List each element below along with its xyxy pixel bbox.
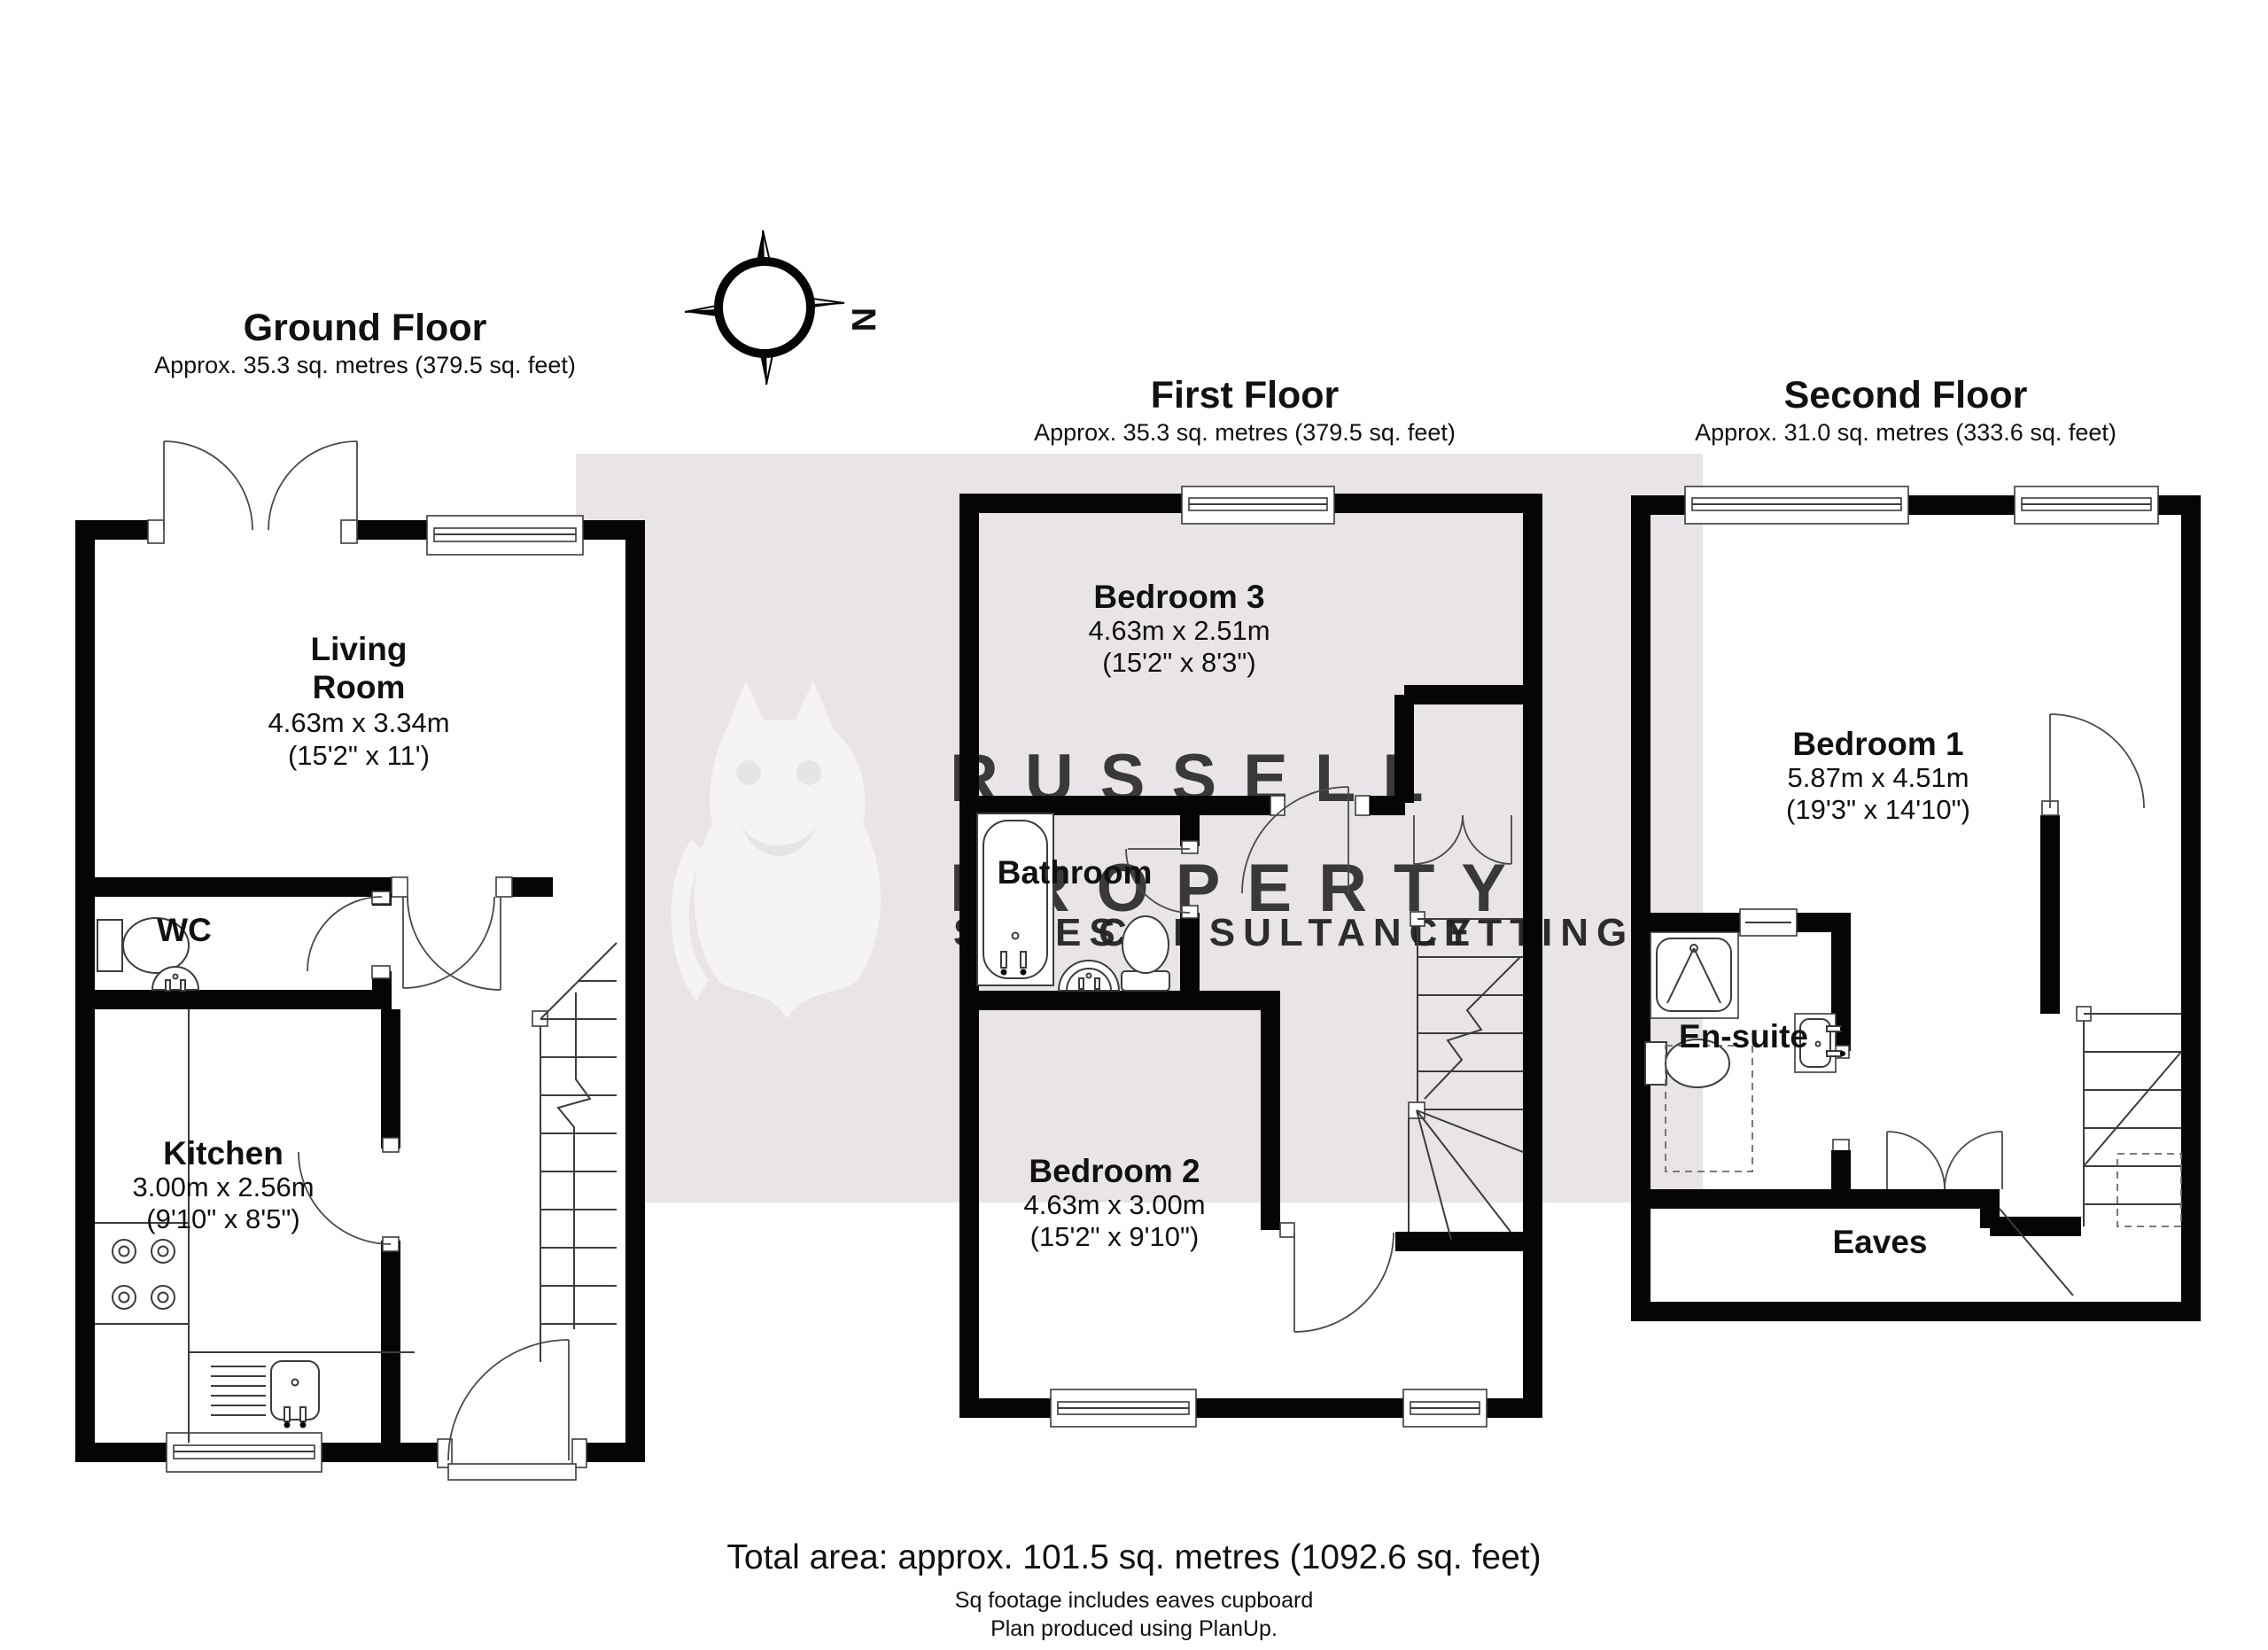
ground-floor-subtitle: Approx. 35.3 sq. metres (379.5 sq. feet) [154,352,576,378]
first-floor-title: First Floor [1151,374,1340,416]
room-dim-bedroom3-imperial: (15'2" x 8'3") [1102,647,1255,678]
window-symbol [1685,486,1908,524]
room-dim-bedroom3-metric: 4.63m x 2.51m [1088,615,1270,646]
room-dim-bedroom2-imperial: (15'2" x 9'10") [1030,1221,1200,1252]
room-label-wc: WC [157,912,212,948]
footer-note-2: Plan produced using PlanUp. [990,1616,1278,1641]
compass-rose-icon: N [685,230,882,385]
cupboard-doors [1887,1132,2002,1189]
floor-titles: Ground Floor Approx. 35.3 sq. metres (37… [154,307,2117,446]
room-dim-living-metric: 4.63m x 3.34m [268,707,449,738]
toilet-icon [1122,916,1169,991]
room-label-bedroom2: Bedroom 2 [1029,1153,1200,1189]
floorplan-page: RUSSELL PROPERTY SALES CONSULTANCY LETTI… [0,0,2268,1650]
window-symbol [1403,1389,1487,1427]
window-symbol [1051,1389,1196,1427]
floorplan-canvas: RUSSELL PROPERTY SALES CONSULTANCY LETTI… [0,0,2268,1650]
window-symbol [1740,909,1797,936]
bathtub-icon [977,813,1053,985]
ground-floor-title: Ground Floor [244,307,487,349]
room-dim-kitchen-imperial: (9'10" x 8'5") [146,1203,299,1234]
door-swing [1294,1233,1394,1332]
room-dim-bedroom1-imperial: (19'3" x 14'10") [1786,794,1970,825]
room-label-living-2: Room [313,669,406,705]
second-floor-subtitle: Approx. 31.0 sq. metres (333.6 sq. feet) [1695,419,2117,446]
shower-icon [1651,932,1738,1018]
room-label-bedroom3: Bedroom 3 [1093,579,1264,615]
room-dim-bedroom1-metric: 5.87m x 4.51m [1787,762,1969,793]
window-symbol [427,516,583,555]
footer-note-1: Sq footage includes eaves cupboard [955,1588,1313,1613]
staircase [2000,1007,2181,1296]
room-label-ensuite: En-suite [1679,1018,1808,1055]
window-symbol [1182,486,1334,524]
footer: Total area: approx. 101.5 sq. metres (10… [726,1538,1541,1641]
first-floor-subtitle: Approx. 35.3 sq. metres (379.5 sq. feet) [1034,419,1456,446]
room-label-bedroom1: Bedroom 1 [1792,726,1963,762]
total-area-text: Total area: approx. 101.5 sq. metres (10… [726,1538,1541,1576]
second-floor-title: Second Floor [1784,374,2028,416]
ground-floor-plan: Living Room 4.63m x 3.34m (15'2" x 11') … [75,441,645,1480]
room-dim-living-imperial: (15'2" x 11') [288,740,430,771]
compass-north-label: N [844,307,882,331]
window-symbol [2015,486,2158,524]
door-swing [2050,714,2144,808]
room-label-bathroom: Bathroom [998,854,1153,891]
room-dim-kitchen-metric: 3.00m x 2.56m [132,1171,314,1202]
window-symbol [167,1433,322,1472]
room-label-kitchen: Kitchen [163,1135,283,1171]
room-label-eaves: Eaves [1833,1224,1928,1260]
room-label-living-1: Living [311,631,408,667]
second-floor-plan: Bedroom 1 5.87m x 4.51m (19'3" x 14'10")… [1641,486,2191,1311]
room-dim-bedroom2-metric: 4.63m x 3.00m [1023,1189,1205,1220]
